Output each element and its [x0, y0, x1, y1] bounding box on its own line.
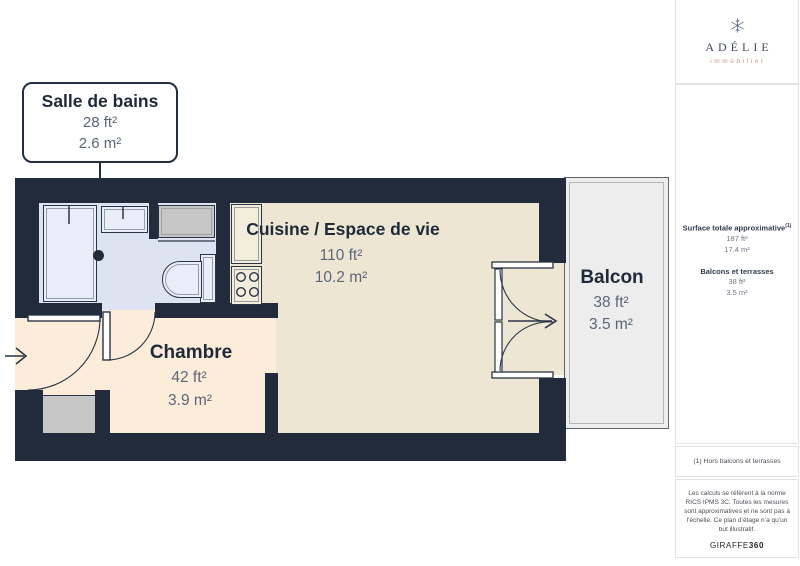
kitchen-living-floor-lower: [276, 300, 540, 440]
total-surface-label-text: Surface totale approximative: [683, 224, 786, 233]
wall-closet-stub: [95, 390, 110, 435]
room-label-cuisine: Cuisine / Espace de vie: [246, 219, 440, 240]
room-area-ft-balcon: 38 ft²: [593, 294, 628, 312]
total-surface-label: Surface totale approximative(1): [683, 223, 792, 233]
closet-niche: [43, 395, 95, 435]
total-surface-ft: 187 ft²: [726, 233, 747, 244]
toilet-tank: [200, 254, 216, 303]
toilet-bowl: [162, 261, 202, 298]
giraffe360-brand-regular: GIRAFFE: [710, 541, 749, 550]
wall-hall-left: [15, 303, 102, 318]
shower-door-pivot: [93, 250, 104, 261]
giraffe360-brand-bold: 360: [749, 541, 764, 550]
wall-hall-right: [155, 303, 278, 318]
giraffe360-brand: GIRAFFE360: [710, 541, 764, 550]
room-area-m-balcon: 3.5 m²: [589, 316, 633, 334]
footnote-marker: (1): [785, 223, 791, 229]
wall-left-upper: [15, 178, 39, 310]
callout-title: Salle de bains: [42, 91, 159, 112]
room-area-ft-cuisine: 110 ft²: [320, 247, 363, 265]
wall-top: [15, 178, 566, 203]
bathroom-sink: [101, 206, 148, 233]
footnote-card: (1) Hors balcons et terrasses: [675, 446, 799, 477]
wall-sink-partition: [149, 203, 158, 239]
total-surface-m: 17.4 m²: [724, 244, 749, 255]
kitchen-living-floor: [225, 190, 545, 315]
wall-right-upper: [539, 203, 566, 263]
terrace-ft: 38 ft²: [728, 276, 745, 287]
wall-right-lower: [539, 378, 566, 435]
room-label-chambre: Chambre: [150, 342, 232, 364]
disclaimer-card: Les calculs se réfèrent à la norme RICS …: [675, 479, 799, 558]
agency-logo-card: ADÉLIE immobilier: [675, 0, 799, 84]
room-label-balcon: Balcon: [580, 267, 643, 289]
wall-bathroom-kitchen: [216, 178, 230, 310]
surface-summary-card: Surface totale approximative(1) 187 ft² …: [675, 84, 799, 444]
agency-name: ADÉLIE: [701, 40, 772, 55]
washing-machine: [158, 205, 215, 238]
callout-area-m: 2.6 m²: [79, 134, 122, 154]
snowflake-icon: [729, 17, 746, 34]
bathroom-callout: Salle de bains 28 ft² 2.6 m²: [22, 82, 178, 163]
footnote-text: (1) Hors balcons et terrasses: [693, 458, 780, 465]
wall-bedroom-kitchen-stub: [265, 373, 278, 435]
disclaimer-text: Les calculs se réfèrent à la norme RICS …: [683, 489, 791, 534]
agency-subtitle: immobilier: [708, 58, 766, 65]
shower: [43, 205, 97, 302]
balcony-door-threshold: [540, 263, 566, 375]
callout-area-ft: 28 ft²: [83, 113, 117, 133]
room-area-m-cuisine: 10.2 m²: [315, 269, 368, 287]
wall-bottom: [15, 433, 566, 461]
terrace-label: Balcons et terrasses: [700, 267, 773, 276]
terrace-m: 3.5 m²: [726, 287, 747, 298]
room-area-m-chambre: 3.9 m²: [168, 392, 212, 410]
room-area-ft-chambre: 42 ft²: [171, 369, 206, 387]
floorplan-page: Cuisine / Espace de vie 110 ft² 10.2 m² …: [0, 0, 800, 566]
stove: [231, 266, 262, 305]
